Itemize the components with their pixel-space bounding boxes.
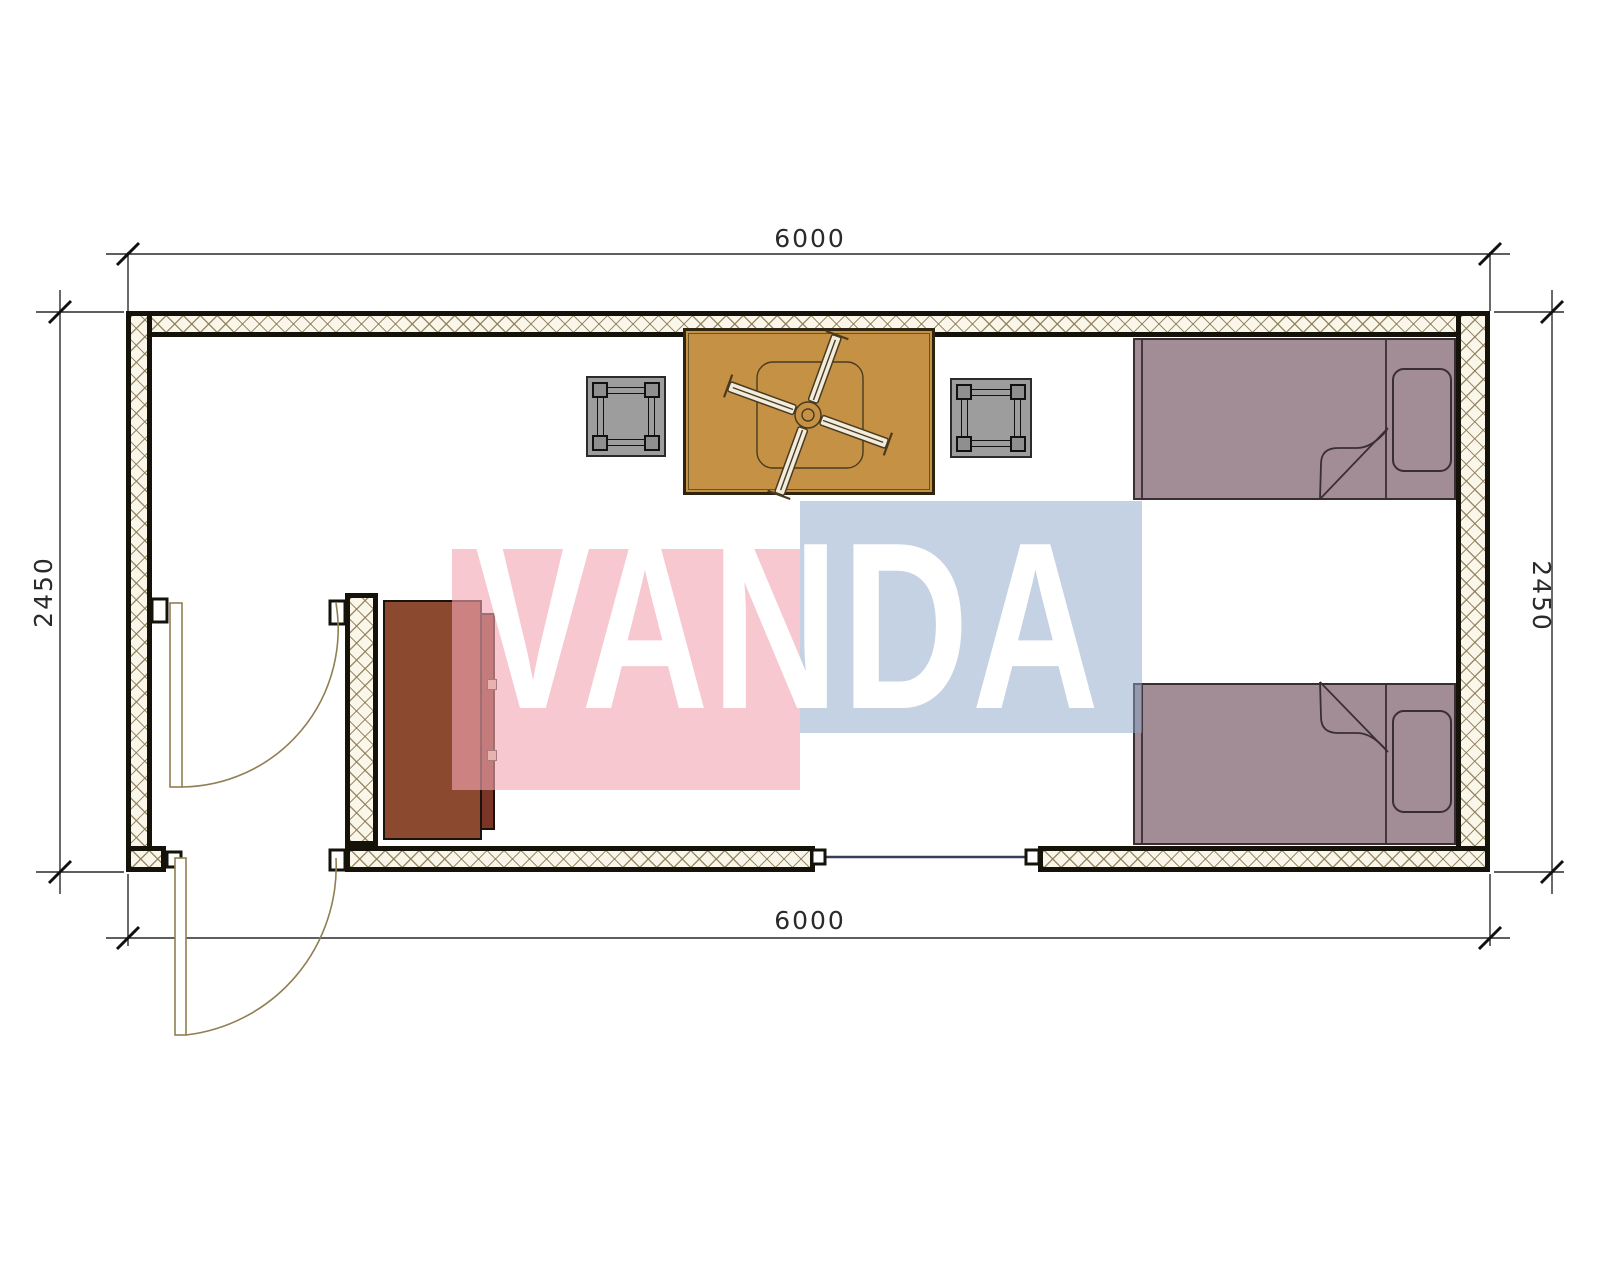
- wall-interior-partition: [345, 593, 378, 846]
- stool-leg: [1010, 436, 1026, 452]
- dimension-top: [106, 243, 1510, 311]
- pillow: [1392, 710, 1452, 813]
- wall-right: [1456, 311, 1490, 872]
- stool-leg: [956, 436, 972, 452]
- single-bed-bottom: [1133, 683, 1456, 845]
- entry-door: [167, 850, 345, 1035]
- dining-table-edge: [688, 333, 930, 490]
- dining-table: [683, 328, 935, 495]
- wall-bottom-segment-a: [345, 846, 815, 872]
- stool-leg: [956, 384, 972, 400]
- wall-bottom-segment-b: [1038, 846, 1490, 872]
- pillow: [1392, 368, 1452, 472]
- wall-bottom-left-return: [126, 846, 166, 872]
- dimension-label-bottom: 6000: [750, 908, 870, 934]
- window: [812, 850, 1039, 864]
- wall-left: [126, 311, 152, 872]
- stool-leg: [644, 382, 660, 398]
- dimension-label-top: 6000: [750, 226, 870, 252]
- floor-plan: VANDA 6000 6000 2450 2450: [0, 0, 1600, 1280]
- stool-right: [950, 378, 1032, 458]
- stool-leg: [644, 435, 660, 451]
- watermark-logo-text: VANDA: [474, 508, 1102, 746]
- stool-leg: [592, 435, 608, 451]
- stool-left: [586, 376, 666, 457]
- interior-door: [152, 599, 345, 787]
- stool-leg: [1010, 384, 1026, 400]
- dimension-label-right: 2450: [1528, 536, 1554, 656]
- stool-leg: [592, 382, 608, 398]
- dimension-label-left: 2450: [31, 532, 57, 652]
- single-bed-top: [1133, 338, 1456, 500]
